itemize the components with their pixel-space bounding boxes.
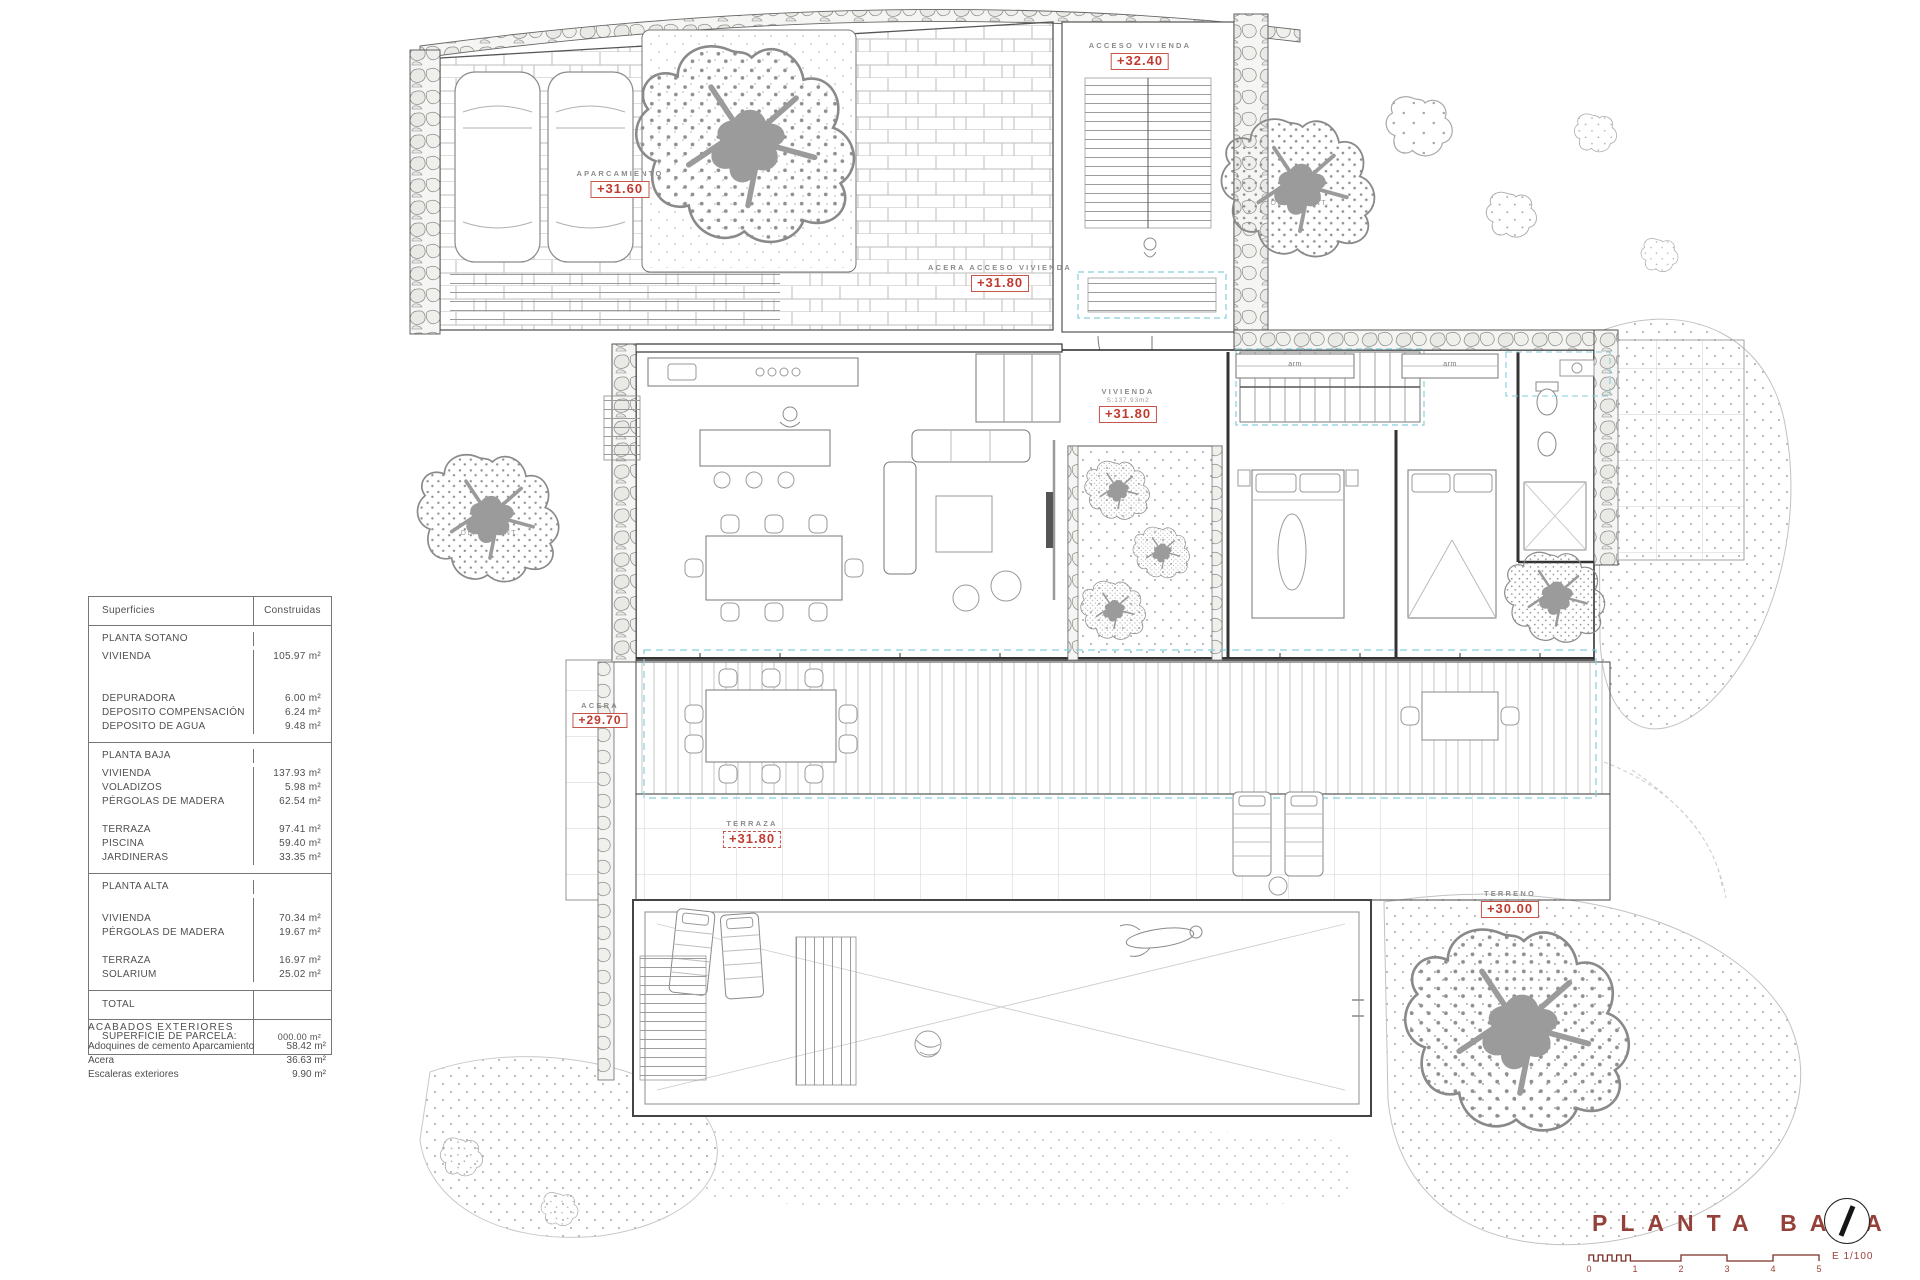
side-terrace [1618, 340, 1744, 560]
elevation-label-terraza: TERRAZA +31.80 [723, 820, 781, 848]
scale-tick: 3 [1724, 1264, 1729, 1274]
exterior-finishes: ACABADOS EXTERIORES Adoquines de cemento… [88, 1022, 326, 1082]
main-house [604, 330, 1618, 662]
list-item: Adoquines de cemento Aparcamiento58.42 m… [88, 1040, 326, 1054]
table-row: VIVIENDA70.34 m² [89, 912, 331, 926]
patio-garden [1068, 446, 1222, 660]
wardrobe-label: arm [1288, 361, 1302, 368]
table-row: JARDINERAS33.35 m² [89, 851, 331, 865]
elevation-label-acceso: ACCESO VIVIENDA +32.40 [1089, 42, 1192, 70]
exterior-finishes-title: ACABADOS EXTERIORES [88, 1022, 326, 1033]
areas-table: Superficies Construidas PLANTA SOTANO VI… [88, 596, 332, 1055]
table-row: DEPOSITO COMPENSACIÓN6.24 m² [89, 706, 331, 720]
scale-tick: 0 [1586, 1264, 1591, 1274]
exterior-stairs [640, 956, 706, 1080]
table-group-alta: PLANTA ALTA VIVIENDA70.34 m² PÉRGOLAS DE… [89, 873, 331, 990]
deck-terrace [636, 650, 1610, 900]
list-item: Escaleras exteriores9.90 m² [88, 1068, 326, 1082]
badge-slash-icon [1839, 1205, 1856, 1237]
olive-tree-label: OLIVO CENT. [461, 530, 520, 537]
table-total-row: TOTAL [89, 990, 331, 1019]
table-row: VOLADIZOS5.98 m² [89, 781, 331, 795]
pool [633, 900, 1371, 1116]
table-row: DEPOSITO DE AGUA9.48 m² [89, 720, 331, 734]
list-item: Acera36.63 m² [88, 1054, 326, 1068]
table-row: DEPURADORA6.00 m² [89, 692, 331, 706]
drawing-number-badge [1824, 1198, 1870, 1244]
table-row: VIVIENDA105.97 m² [89, 650, 331, 664]
table-row: PÉRGOLAS DE MADERA19.67 m² [89, 926, 331, 940]
page-title: PLANTA BAJA [1592, 1210, 1828, 1237]
scale-ratio-label: E 1/100 [1832, 1251, 1873, 1262]
elevation-label-acera-acceso: ACERA ACCESO VIVIENDA +31.80 [928, 264, 1072, 292]
plan-sheet: OLIVO CENT. OLIVO CENT. OLIVO CENT. OLIV… [0, 0, 1920, 1280]
table-group-baja: PLANTA BAJA VIVIENDA137.93 m² VOLADIZOS5… [89, 742, 331, 873]
table-row: PISCINA59.40 m² [89, 837, 331, 851]
car [548, 72, 633, 262]
olive-tree-label: OLIVO CENT. [1491, 1046, 1550, 1053]
table-header: Superficies Construidas [89, 597, 331, 625]
scale-tick: 1 [1632, 1264, 1637, 1274]
table-row: VIVIENDA137.93 m² [89, 767, 331, 781]
scale-bar: 0 1 2 3 4 5 [1588, 1248, 1834, 1280]
table-row: PÉRGOLAS DE MADERA62.54 m² [89, 795, 331, 809]
elevation-label-acera: ACERA +29.70 [572, 702, 627, 729]
table-row: TERRAZA16.97 m² [89, 954, 331, 968]
car [455, 72, 540, 262]
table-group-sotano: PLANTA SOTANO VIVIENDA105.97 m² DEPURADO… [89, 625, 331, 742]
scale-tick: 4 [1770, 1264, 1775, 1274]
scale-bar-graphic [1588, 1248, 1834, 1264]
wardrobe-label: arm [1443, 361, 1457, 368]
scale-tick: 5 [1816, 1264, 1821, 1274]
table-row: TERRAZA97.41 m² [89, 823, 331, 837]
olive-tree-label: OLIVO CENT. [1271, 200, 1330, 207]
olive-tree-label: OLIVO CENT. [719, 160, 778, 167]
elevation-label-vivienda: VIVIENDA S:137.93m2 +31.80 [1099, 388, 1157, 423]
table-row: SOLARIUM25.02 m² [89, 968, 331, 982]
scale-tick: 2 [1678, 1264, 1683, 1274]
elevation-label-aparcamiento: APARCAMIENTO +31.60 [577, 170, 664, 198]
elevation-label-terreno: TERRENO +30.00 [1481, 890, 1539, 918]
